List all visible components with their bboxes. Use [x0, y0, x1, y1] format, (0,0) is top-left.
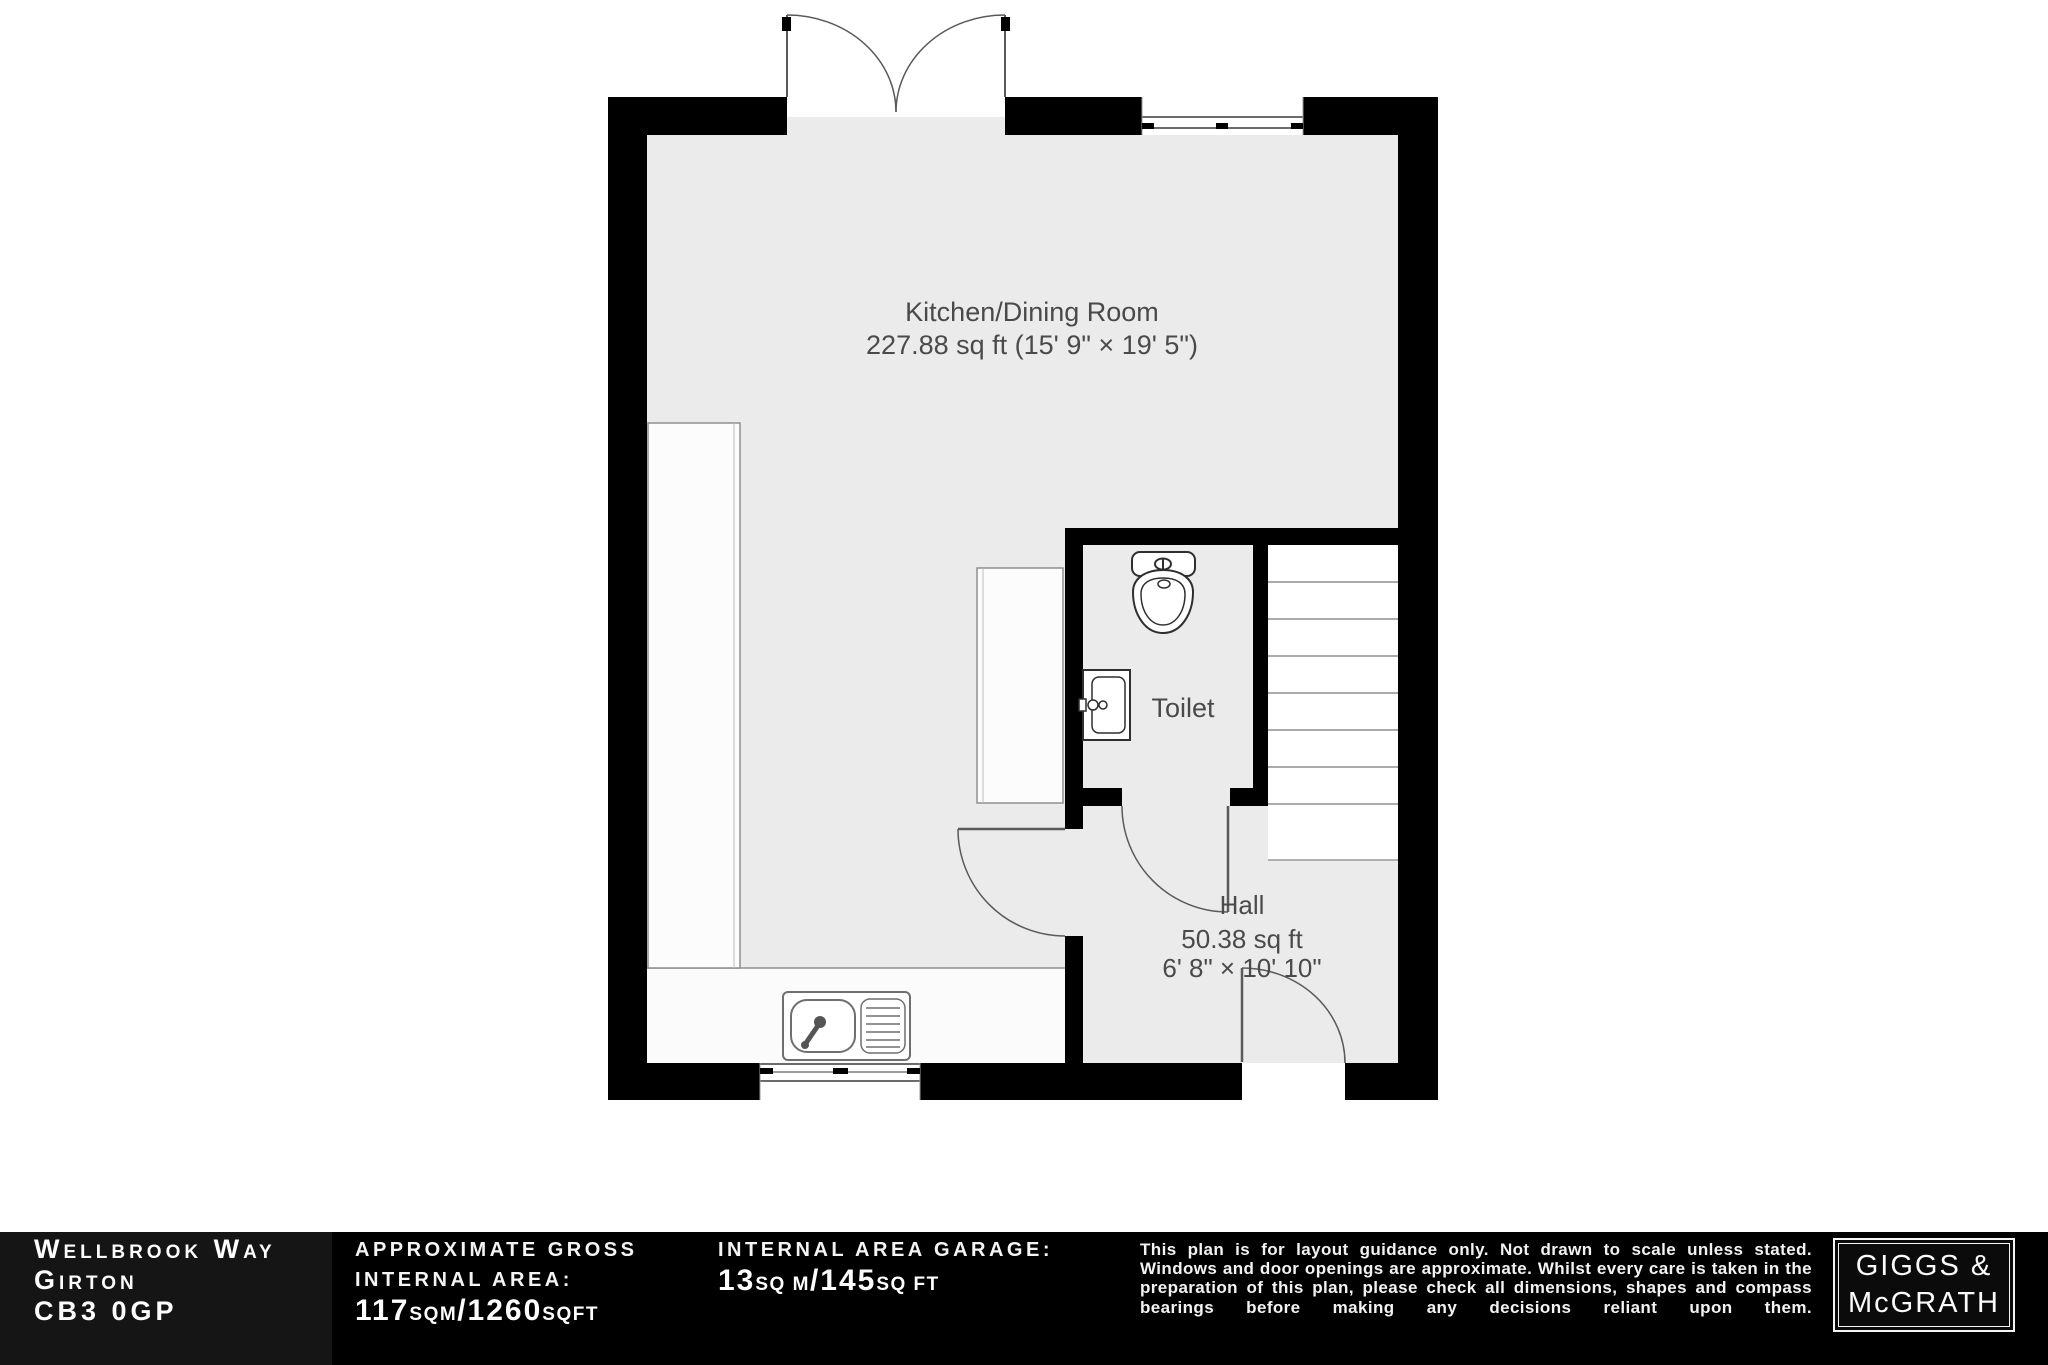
- door-threshold: [787, 117, 1005, 136]
- kitchen-room-dims: 227.88 sq ft (15' 9" × 19' 5"): [866, 330, 1198, 360]
- agency-logo-line-2: McGRATH: [1848, 1285, 2000, 1322]
- garage-sqft-unit: SQ FT: [876, 1274, 939, 1295]
- internal-area-label-2: INTERNAL AREA:: [355, 1265, 638, 1295]
- internal-area-label-1: APPROXIMATE GROSS: [355, 1235, 638, 1265]
- kitchen-island-unit: [977, 568, 1063, 803]
- garage-sqft-number: /145: [810, 1264, 876, 1297]
- area-sqft-unit: SQFT: [542, 1304, 599, 1325]
- agency-logo-line-1: GIGGS &: [1856, 1248, 1992, 1285]
- wall-bottom-c: [1345, 1063, 1438, 1100]
- disclaimer-text: This plan is for layout guidance only. N…: [1140, 1240, 1812, 1317]
- garage-area-label: INTERNAL AREA GARAGE:: [718, 1235, 1053, 1265]
- internal-area-value: 117SQM/1260SQFT: [355, 1295, 638, 1332]
- area-sqft-number: /1260: [457, 1294, 542, 1327]
- floor-plan: Kitchen/Dining Room 227.88 sq ft (15' 9"…: [0, 0, 2048, 1232]
- garage-sqm-number: 13: [718, 1264, 755, 1297]
- internal-area-summary: APPROXIMATE GROSS INTERNAL AREA: 117SQM/…: [355, 1235, 638, 1332]
- sink-icon: [783, 992, 910, 1060]
- stairs-floor: [1268, 545, 1398, 860]
- toilet-icon: [1132, 552, 1195, 633]
- address-line-1: Wellbrook Way: [34, 1234, 276, 1265]
- kitchen-room-label: Kitchen/Dining Room: [905, 297, 1159, 327]
- wall-top-b: [1005, 97, 1142, 135]
- wall-bottom-a: [608, 1063, 760, 1100]
- garage-sqm-unit: SQ M: [755, 1274, 810, 1295]
- garage-area-value: 13SQ M/145SQ FT: [718, 1265, 1053, 1302]
- footer-bar: Wellbrook Way Girton CB3 0GP APPROXIMATE…: [0, 1232, 2048, 1365]
- kitchen-doorway: [1065, 829, 1083, 936]
- area-sqm-number: 117: [355, 1294, 409, 1327]
- agency-logo: GIGGS & McGRATH: [1833, 1238, 2015, 1332]
- french-door-icon: [782, 15, 1010, 112]
- hall-room-label: Hall: [1220, 890, 1265, 920]
- garage-area-summary: INTERNAL AREA GARAGE: 13SQ M/145SQ FT: [718, 1235, 1053, 1302]
- wall-left: [608, 97, 647, 1100]
- address-line-2: Girton: [34, 1265, 276, 1296]
- wall-partition-upper: [1065, 528, 1083, 829]
- agency-logo-frame: GIGGS & McGRATH: [1838, 1243, 2010, 1327]
- window-icon-top: [1142, 97, 1303, 135]
- wall-top-a: [608, 97, 787, 135]
- toilet-room-label: Toilet: [1151, 693, 1215, 723]
- hall-room-area: 50.38 sq ft: [1181, 924, 1303, 954]
- window-icon-bottom: [760, 1063, 920, 1100]
- property-address: Wellbrook Way Girton CB3 0GP: [34, 1234, 276, 1327]
- wall-toilet-right: [1253, 545, 1268, 806]
- wall-bottom-b: [920, 1063, 1242, 1100]
- area-sqm-unit: SQM: [409, 1304, 457, 1325]
- wall-toilet-bottom-left: [1065, 788, 1122, 806]
- basin-icon: [1079, 670, 1130, 740]
- kitchen-unit-left: [648, 423, 740, 968]
- address-line-3: CB3 0GP: [34, 1296, 276, 1327]
- wall-toilet-top: [1065, 528, 1400, 545]
- hall-room-dims: 6' 8" × 10' 10": [1162, 953, 1321, 983]
- wall-right: [1398, 97, 1438, 1100]
- floorplan-page: Kitchen/Dining Room 227.88 sq ft (15' 9"…: [0, 0, 2048, 1365]
- wall-partition-lower: [1065, 936, 1083, 1063]
- toilet-doorway: [1122, 788, 1230, 806]
